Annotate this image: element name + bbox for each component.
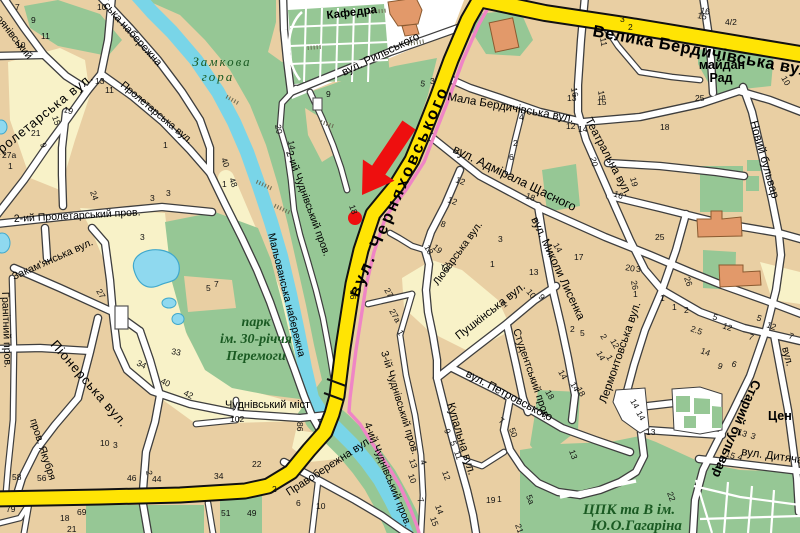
- svg-text:1: 1: [672, 302, 677, 312]
- svg-text:102: 102: [230, 414, 244, 424]
- svg-text:33: 33: [171, 346, 182, 358]
- svg-text:3: 3: [498, 234, 503, 244]
- svg-text:6: 6: [296, 498, 301, 508]
- svg-text:10: 10: [316, 501, 326, 511]
- svg-text:7: 7: [214, 279, 219, 289]
- svg-text:18: 18: [60, 513, 70, 523]
- svg-text:1: 1: [490, 259, 495, 269]
- svg-text:10: 10: [100, 438, 110, 448]
- svg-text:25: 25: [655, 232, 665, 242]
- svg-text:20: 20: [625, 262, 636, 274]
- svg-text:3: 3: [113, 440, 118, 450]
- svg-text:1: 1: [8, 161, 13, 171]
- svg-text:69: 69: [77, 507, 87, 517]
- svg-text:3: 3: [166, 188, 171, 198]
- svg-text:3: 3: [636, 264, 641, 274]
- svg-text:1: 1: [163, 140, 168, 150]
- svg-text:79: 79: [6, 504, 16, 514]
- svg-text:13: 13: [95, 76, 105, 86]
- svg-text:1: 1: [660, 293, 665, 303]
- svg-text:25: 25: [695, 93, 705, 103]
- svg-text:5: 5: [580, 328, 585, 338]
- svg-text:парк: парк: [242, 315, 272, 330]
- svg-text:Рад: Рад: [709, 71, 732, 85]
- svg-text:19: 19: [486, 495, 496, 505]
- svg-text:3: 3: [620, 14, 625, 24]
- svg-text:11: 11: [105, 85, 114, 95]
- svg-text:49: 49: [247, 508, 257, 518]
- svg-text:11: 11: [41, 31, 50, 41]
- svg-text:58: 58: [12, 472, 22, 482]
- svg-text:51: 51: [221, 508, 231, 518]
- svg-text:Цен: Цен: [768, 409, 792, 423]
- svg-text:44: 44: [152, 474, 162, 484]
- svg-text:1: 1: [222, 179, 227, 189]
- svg-text:1: 1: [497, 494, 502, 504]
- svg-text:13: 13: [646, 427, 656, 437]
- svg-text:15: 15: [597, 97, 607, 107]
- svg-text:4/2: 4/2: [725, 17, 737, 27]
- svg-text:7: 7: [15, 2, 20, 12]
- svg-text:ЦПК та В ім.: ЦПК та В ім.: [582, 502, 675, 518]
- svg-text:16: 16: [700, 5, 711, 17]
- svg-text:9: 9: [326, 89, 331, 99]
- svg-text:22: 22: [252, 459, 262, 469]
- svg-text:Гранітний пров.: Гранітний пров.: [0, 292, 14, 368]
- svg-text:Перемоги: Перемоги: [225, 349, 286, 364]
- svg-text:Замкова: Замкова: [192, 54, 251, 69]
- svg-text:3: 3: [150, 193, 155, 203]
- svg-text:1: 1: [633, 289, 638, 299]
- svg-text:2: 2: [513, 138, 518, 148]
- svg-text:21: 21: [67, 524, 77, 533]
- svg-text:Ю.О.Гагаріна: Ю.О.Гагаріна: [590, 518, 682, 533]
- svg-text:3: 3: [140, 232, 145, 242]
- svg-text:26: 26: [629, 280, 641, 291]
- svg-text:гора: гора: [202, 69, 235, 84]
- svg-text:Чуднівський міст: Чуднівський міст: [225, 399, 310, 411]
- svg-text:13: 13: [567, 93, 577, 103]
- svg-text:2: 2: [272, 484, 277, 494]
- svg-text:13: 13: [529, 267, 539, 277]
- svg-text:9: 9: [31, 15, 36, 25]
- svg-text:86: 86: [295, 422, 305, 432]
- svg-text:34: 34: [214, 471, 224, 481]
- svg-text:20: 20: [273, 124, 285, 135]
- svg-text:46: 46: [127, 473, 137, 483]
- svg-text:18: 18: [660, 122, 670, 132]
- svg-text:2: 2: [684, 305, 689, 315]
- svg-text:5: 5: [206, 283, 211, 293]
- svg-text:ім. 30-річчя: ім. 30-річчя: [220, 332, 292, 347]
- svg-text:майдан: майдан: [699, 58, 745, 72]
- svg-text:3: 3: [430, 76, 435, 86]
- svg-text:17: 17: [574, 252, 584, 262]
- svg-text:2: 2: [570, 324, 575, 334]
- svg-text:6: 6: [509, 152, 514, 162]
